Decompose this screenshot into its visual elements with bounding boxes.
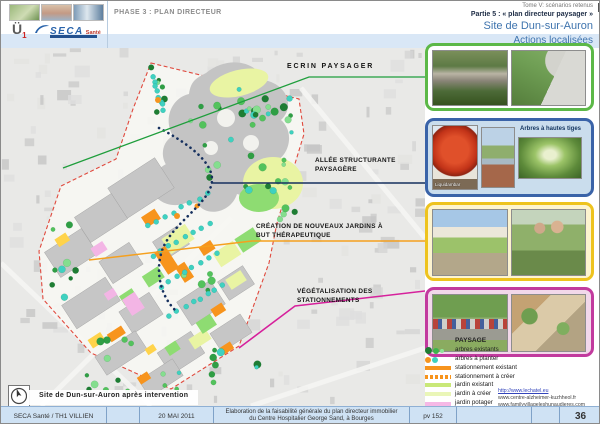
footer-spacer-3 — [531, 407, 559, 424]
legend-swatch-stationnement-a-creer — [425, 375, 451, 379]
link-centre-alzheimer[interactable]: www.centre-alzheimer-kuzhheol.fr — [498, 395, 585, 402]
panel-arbres-hautes-tiges: Liquidambar Arbres à hautes tiges — [425, 118, 594, 197]
photo-aerial-render — [511, 50, 586, 106]
footer-date: 20 MAI 2011 — [139, 407, 213, 424]
legend-item-stationnement-a-creer: stationnement à créer — [425, 374, 595, 380]
legend-swatch-jardin-existant — [425, 383, 451, 387]
logo-photo-3 — [73, 4, 104, 21]
footer-description: Elaboration de la faisabilité générale d… — [213, 407, 409, 424]
legend-item-arbres-existants: arbres existants — [425, 347, 595, 354]
header: Ü1 SECA Santé PHASE 3 : PLAN DIRECTEUR T… — [1, 1, 600, 48]
map-label-vegetalisation: VÉGÉTALISATION DES STATIONNEMENTS — [297, 287, 375, 306]
footer: SECA Santé / TH1 VILLIEN 20 MAI 2011 Ela… — [1, 406, 600, 424]
map-label-allee-structurante: ALLÉE STRUCTURANTE PAYSAGÈRE — [315, 156, 425, 175]
seca-underbar — [50, 35, 97, 38]
secondary-logo-mark: Ü1 — [12, 22, 27, 40]
logo-photo-strip — [9, 4, 104, 21]
legend-item-arbres-a-planter: arbres à planter — [425, 356, 595, 362]
map-label-ecrin-paysager: ECRIN PAYSAGER — [287, 62, 374, 72]
header-divider — [107, 1, 108, 48]
legend-item-stationnement-existant: stationnement existant — [425, 365, 595, 371]
site-plan-map: ECRIN PAYSAGER ALLÉE STRUCTURANTE PAYSAG… — [1, 48, 425, 406]
photo-abbey-hillside — [432, 50, 508, 106]
legend-swatch-jardin-a-creer — [425, 392, 451, 396]
footer-author: SECA Santé / TH1 VILLIEN — [1, 407, 106, 424]
photo-tree-lined-street — [481, 127, 515, 188]
footer-spacer-2 — [456, 407, 531, 424]
legend-swatch-arbres-a-planter — [425, 357, 451, 363]
photo-liquidambar-tree: Liquidambar — [432, 125, 478, 190]
logo-photo-1 — [9, 4, 40, 21]
panel-jardins-therapeutiques — [425, 202, 594, 281]
document-page: Ü1 SECA Santé PHASE 3 : PLAN DIRECTEUR T… — [0, 0, 600, 424]
arbres-hautes-tiges-label: Arbres à hautes tiges — [520, 126, 584, 134]
map-caption: Site de Dun-sur-Auron après intervention — [27, 390, 198, 405]
photo-therapeutic-garden — [432, 209, 508, 276]
photo-elderly-gardeners — [511, 209, 586, 276]
footer-ref: pv 152 — [409, 407, 456, 424]
partie-label: Partie 5 : « plan directeur paysager » — [471, 11, 593, 18]
photo-tree-alley — [518, 137, 582, 179]
link-lechatel[interactable]: http://www.lechatel.eu — [498, 388, 585, 395]
panel-ecrin-paysager — [425, 43, 594, 111]
header-tick — [598, 3, 599, 12]
site-title: Site de Dun-sur-Auron — [471, 21, 593, 32]
tome-label: Tome V: scénarios retenus — [471, 3, 593, 9]
legend-swatch-arbres-existants — [425, 347, 451, 354]
header-right-block: Tome V: scénarios retenus Partie 5 : « p… — [471, 3, 593, 32]
footer-spacer-1 — [106, 407, 139, 424]
footer-page-number: 36 — [559, 407, 600, 424]
seca-swoosh-icon — [34, 24, 50, 34]
phase-title: PHASE 3 : PLAN DIRECTEUR — [114, 9, 222, 16]
liquidambar-caption: Liquidambar — [435, 182, 460, 187]
legend-swatch-stationnement-existant — [425, 366, 451, 370]
legend-title: PAYSAGE — [455, 338, 595, 345]
logo-photo-2 — [41, 4, 72, 21]
map-label-jardins-therapeutiques: CRÉATION DE NOUVEAUX JARDINS À BUT THÉRA… — [256, 222, 398, 241]
